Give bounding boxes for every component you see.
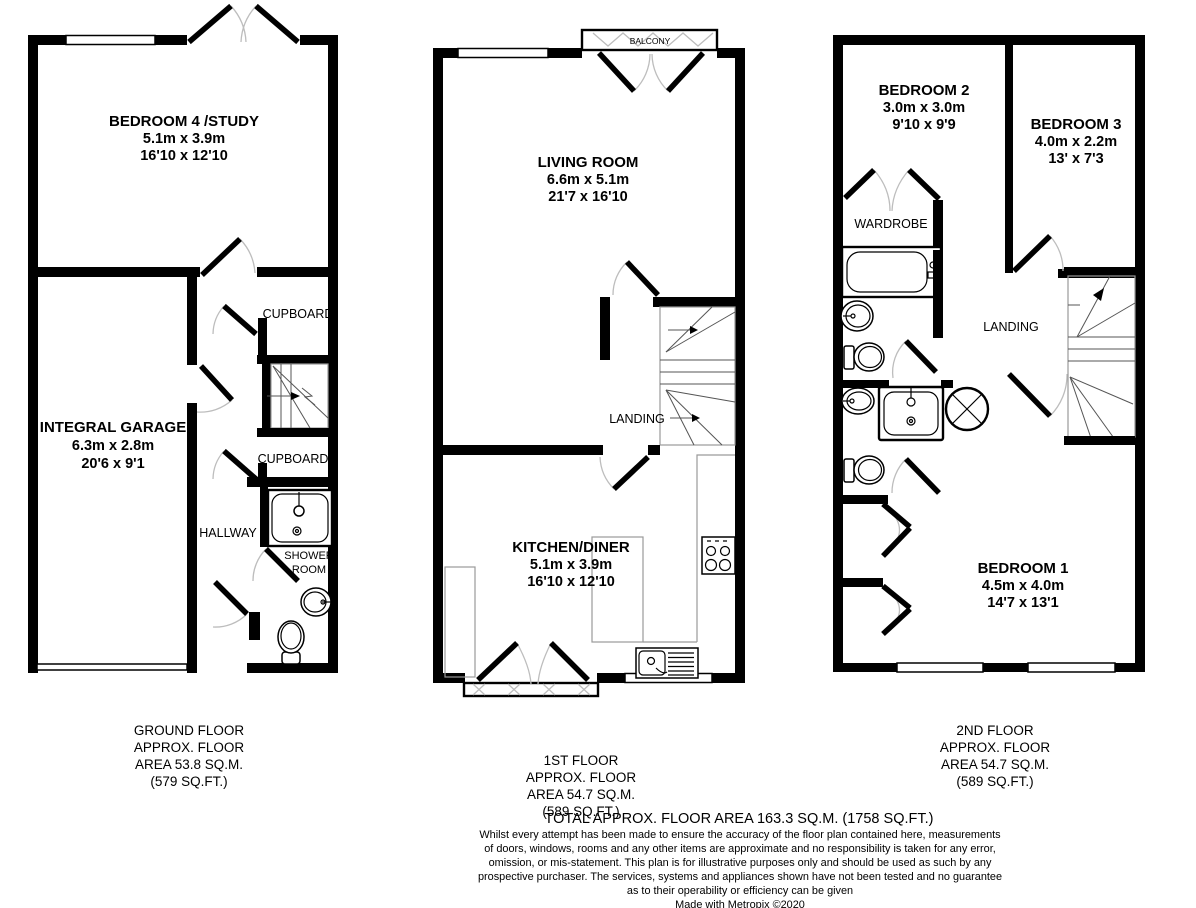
door-leaf (256, 6, 298, 42)
room-label-bedroom1: BEDROOM 1 (978, 560, 1069, 577)
door-swing-arc (1050, 236, 1063, 271)
wall (597, 673, 625, 683)
door-leaf (883, 609, 910, 634)
room-dims-imperial: 14'7 x 13'1 (987, 595, 1058, 611)
door-swing-arc (613, 262, 627, 295)
caption-line: (589 SQ.FT.) (845, 773, 1145, 790)
disclaimer-line: Whilst every attempt has been made to en… (290, 829, 1190, 843)
wall (433, 673, 465, 683)
caption-line: (579 SQ.FT.) (39, 773, 339, 790)
basin (301, 588, 331, 616)
wall (247, 477, 338, 487)
room-dims-imperial: 16'10 x 12'10 (140, 148, 228, 164)
wall (933, 250, 943, 338)
toilet (278, 621, 304, 664)
door-leaf (1009, 374, 1050, 416)
door-swing-arc (1050, 374, 1067, 416)
room-dims-imperial: 13' x 7'3 (1048, 151, 1103, 167)
wall (833, 663, 897, 672)
wall (257, 267, 338, 277)
disclaimer: Whilst every attempt has been made to en… (290, 829, 1190, 908)
wall (648, 445, 660, 455)
room-label-cupboard-upper: CUPBOARD (263, 307, 334, 321)
wall (28, 35, 38, 673)
room-dims-imperial: 21'7 x 16'10 (548, 189, 627, 205)
wall (433, 445, 603, 455)
door-leaf (224, 306, 256, 334)
bathtub (842, 247, 941, 297)
room-dims-metric: 6.6m x 5.1m (547, 172, 629, 188)
door-swing-arc (893, 341, 906, 378)
wall (933, 200, 943, 250)
door-leaf (478, 643, 517, 680)
caption-line: GROUND FLOOR (39, 722, 339, 739)
wall (28, 267, 200, 277)
wall (600, 297, 610, 360)
room-dims-imperial: 16'10 x 12'10 (527, 574, 615, 590)
wall (735, 48, 745, 683)
door-swing-arc (517, 643, 531, 684)
ground-floor-caption: GROUND FLOOR APPROX. FLOOR AREA 53.8 SQ.… (39, 722, 339, 790)
stair-direction-arrow (1093, 288, 1104, 301)
door-swing-arc (600, 457, 614, 489)
stair-direction-arrow (690, 326, 698, 334)
door-leaf (668, 53, 703, 91)
room-label-landing: LANDING (609, 412, 665, 426)
stair-direction-arrow (291, 392, 300, 400)
caption-line: AREA 54.7 SQ.M. (845, 756, 1145, 773)
door-leaf (845, 170, 874, 198)
toilet (844, 456, 884, 484)
door-leaf (201, 366, 232, 400)
window (1028, 663, 1115, 672)
door-swing-arc (892, 170, 909, 211)
room-label-landing: LANDING (983, 320, 1039, 334)
door-leaf (883, 528, 910, 556)
wall (1115, 663, 1145, 672)
toilet (844, 343, 884, 371)
door-swing-arc (213, 306, 224, 334)
wall (712, 673, 745, 683)
shower-tray (268, 490, 332, 546)
door-leaf (883, 586, 910, 608)
door-leaf (551, 643, 588, 680)
disclaimer-line: omission, or mis-statement. This plan is… (290, 857, 1190, 871)
door-swing-arc (197, 400, 232, 412)
door-swing-arc (892, 459, 906, 493)
door-leaf (224, 451, 256, 479)
staircase (257, 355, 338, 437)
door-swing-arc (253, 549, 266, 581)
second-floor-caption: 2ND FLOOR APPROX. FLOOR AREA 54.7 SQ.M. … (845, 722, 1145, 790)
wall (258, 318, 267, 357)
disclaimer-line: prospective purchaser. The services, sys… (290, 871, 1190, 885)
room-label-balcony: BALCONY (630, 36, 671, 46)
total-floor-area: TOTAL APPROX. FLOOR AREA 163.3 SQ.M. (17… (294, 811, 1184, 827)
staircase (1064, 267, 1135, 445)
room-label-bedroom2: BEDROOM 2 (879, 82, 970, 99)
metropix-credit: Made with Metropix ©2020 (290, 899, 1190, 908)
stair-direction-arrow (692, 414, 700, 422)
window (458, 49, 548, 58)
room-dims-metric: 5.1m x 3.9m (143, 131, 225, 147)
disclaimer-line: as to their operability or efficiency ca… (290, 885, 1190, 899)
door-leaf (883, 504, 910, 527)
room-label-hallway: HALLWAY (199, 526, 257, 540)
plan-second-floor: BEDROOM 2 3.0m x 3.0m 9'10 x 9'9 BEDROOM… (833, 35, 1145, 672)
door-swing-arc (874, 170, 890, 211)
room-label-shower-room: SHOWER (284, 550, 334, 562)
caption-line: AREA 53.8 SQ.M. (39, 756, 339, 773)
room-dims-metric: 5.1m x 3.9m (530, 557, 612, 573)
caption-line: 1ST FLOOR (431, 752, 731, 769)
room-label-living: LIVING ROOM (538, 154, 639, 171)
door-leaf (599, 53, 634, 91)
room-label-cupboard-lower: CUPBOARD (258, 452, 329, 466)
caption-line: APPROX. FLOOR (431, 769, 731, 786)
door-leaf (906, 341, 936, 372)
door-leaf (202, 239, 240, 275)
door-leaf (909, 170, 939, 199)
room-label-bedroom3: BEDROOM 3 (1031, 116, 1122, 133)
garage-door (37, 664, 187, 670)
door-leaf (627, 262, 658, 295)
wall (260, 487, 268, 547)
door-swing-arc (213, 614, 247, 627)
stove (702, 537, 735, 574)
disclaimer-line: of doors, windows, rooms and any other i… (290, 843, 1190, 857)
basin (841, 301, 873, 331)
door-leaf (189, 6, 231, 42)
window (897, 663, 983, 672)
vanity-sink (879, 387, 943, 440)
shower-unit (946, 388, 988, 430)
window (66, 36, 155, 45)
wall (187, 403, 197, 673)
floorplan-canvas: BEDROOM 4 /STUDY 5.1m x 3.9m 16'10 x 12'… (0, 0, 1196, 908)
door-swing-arc (231, 6, 246, 42)
wall (1135, 35, 1145, 672)
wall (1005, 45, 1013, 273)
door-swing-arc (213, 451, 224, 479)
wall (833, 578, 883, 587)
door-leaf (1014, 236, 1050, 271)
caption-line: APPROX. FLOOR (39, 739, 339, 756)
wall (187, 277, 197, 365)
wall (433, 48, 443, 683)
door-swing-arc (538, 643, 551, 684)
wall (983, 663, 1028, 672)
room-dims-metric: 4.0m x 2.2m (1035, 134, 1117, 150)
door-swing-arc (241, 6, 256, 42)
room-label-bedroom4: BEDROOM 4 /STUDY (109, 113, 259, 130)
door-leaf (906, 459, 939, 493)
basin (842, 388, 874, 414)
wall (833, 35, 843, 672)
kitchen-counter (445, 567, 475, 677)
room-label-kitchen: KITCHEN/DINER (512, 539, 630, 556)
door-leaf (614, 457, 648, 489)
staircase (653, 297, 745, 445)
caption-line: APPROX. FLOOR (845, 739, 1145, 756)
room-dims-metric: 4.5m x 4.0m (982, 578, 1064, 594)
wall (328, 35, 338, 673)
caption-line: 2ND FLOOR (845, 722, 1145, 739)
room-dims-metric: 6.3m x 2.8m (72, 438, 154, 454)
kitchen-sink (636, 648, 698, 678)
plan-ground-floor: BEDROOM 4 /STUDY 5.1m x 3.9m 16'10 x 12'… (28, 6, 338, 673)
room-label-garage: INTEGRAL GARAGE (40, 419, 186, 436)
plan-first-floor: LIVING ROOM 6.6m x 5.1m 21'7 x 16'10 KIT… (433, 30, 745, 696)
room-label-shower-room: ROOM (292, 564, 326, 576)
room-dims-metric: 3.0m x 3.0m (883, 100, 965, 116)
front-door-leaf (215, 582, 247, 614)
first-floor-caption: 1ST FLOOR APPROX. FLOOR AREA 54.7 SQ.M. … (431, 752, 731, 820)
wall (249, 612, 260, 640)
room-dims-imperial: 20'6 x 9'1 (81, 456, 144, 472)
room-dims-imperial: 9'10 x 9'9 (892, 117, 955, 133)
caption-line: AREA 54.7 SQ.M. (431, 786, 731, 803)
wall (833, 495, 888, 504)
room-label-wardrobe: WARDROBE (854, 217, 927, 231)
wall (833, 35, 1145, 45)
door-swing-arc (240, 239, 255, 273)
